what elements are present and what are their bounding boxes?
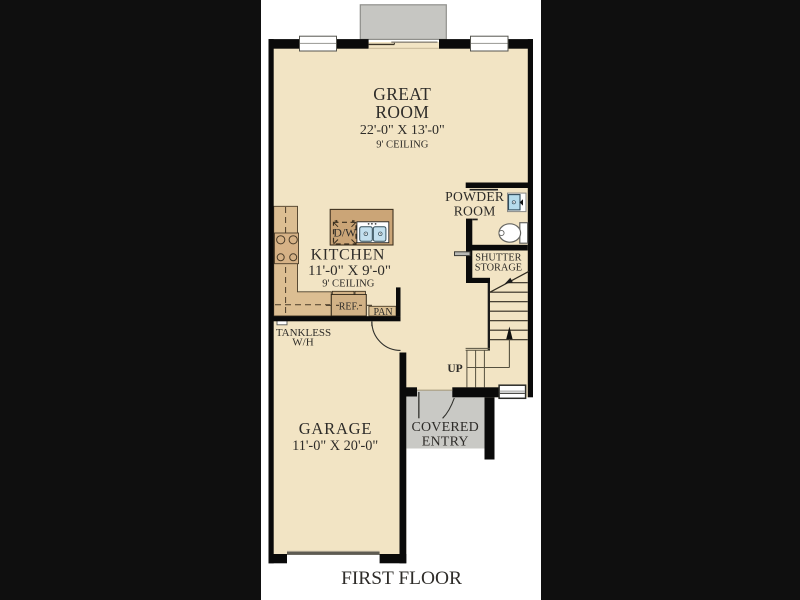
svg-text:ROOM: ROOM — [375, 102, 429, 122]
svg-text:W/H: W/H — [292, 336, 313, 348]
svg-text:22'-0" X 13'-0": 22'-0" X 13'-0" — [360, 123, 445, 138]
svg-text:11'-0" X 20'-0": 11'-0" X 20'-0" — [292, 438, 378, 454]
svg-text:ENTRY: ENTRY — [422, 434, 469, 449]
svg-text:ROOM: ROOM — [454, 204, 496, 219]
svg-text:FIRST FLOOR: FIRST FLOOR — [341, 568, 462, 589]
svg-text:COVERED: COVERED — [411, 420, 479, 435]
svg-text:11'-0" X 9'-0": 11'-0" X 9'-0" — [308, 263, 391, 279]
svg-text:9' CEILING: 9' CEILING — [376, 139, 429, 150]
svg-text:POWDER: POWDER — [445, 189, 505, 204]
svg-text:D/W: D/W — [333, 226, 357, 240]
svg-text:UP: UP — [447, 363, 462, 375]
svg-text:KITCHEN: KITCHEN — [311, 246, 385, 263]
svg-text:STORAGE: STORAGE — [475, 262, 522, 273]
svg-text:9' CEILING: 9' CEILING — [322, 278, 375, 289]
svg-text:GARAGE: GARAGE — [299, 419, 373, 438]
svg-text:REF.: REF. — [339, 302, 359, 313]
